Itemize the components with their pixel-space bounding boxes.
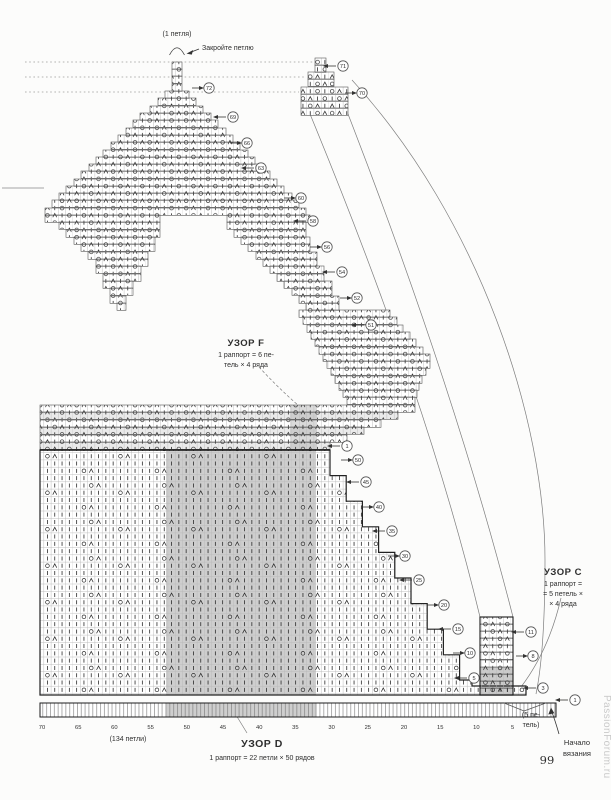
chart-row-grid: [248, 244, 310, 251]
chart-row-grid: [40, 405, 415, 412]
arrow-left-icon: [213, 115, 218, 119]
axis-tick-label: 50: [184, 725, 190, 731]
chart-row-grid: [284, 281, 332, 288]
chart-row-grid: [150, 106, 203, 113]
svg-text:51: 51: [368, 323, 374, 329]
svg-text:52: 52: [354, 296, 360, 302]
pattern-c-line3: × 4 ряда: [549, 601, 577, 608]
axis-tick-label: 35: [292, 725, 298, 731]
chart-row-grid: [103, 281, 133, 288]
dotted-guide-lines: [25, 62, 313, 92]
bind-off-label: Закройте петлю: [202, 44, 254, 52]
chart-row-grid: [45, 208, 306, 215]
pattern-d-pointer: [236, 715, 247, 733]
chart-row-grid: [347, 397, 415, 404]
chart-row-grid: [301, 94, 348, 101]
row-marker: 20: [427, 600, 449, 610]
chart-row-grid: [315, 339, 416, 346]
arrow-right-icon: [199, 86, 204, 90]
svg-text:3: 3: [541, 686, 544, 692]
chart-row-grid: [303, 317, 397, 324]
chart-row-grid: [335, 376, 422, 383]
chart-row-grid: [40, 420, 381, 427]
chart-row-grid: [256, 252, 317, 259]
chart-row-grid: [480, 674, 513, 681]
chart-row-grid: [172, 69, 182, 76]
svg-text:60: 60: [298, 196, 304, 202]
svg-text:1: 1: [573, 698, 576, 704]
knitting-chart-canvas: 706560555045403530252015105 726966636058…: [0, 0, 611, 800]
arrow-right-icon: [395, 554, 400, 558]
svg-text:71: 71: [340, 64, 346, 70]
chart-row-grid: [103, 274, 141, 281]
axis-tick-label: 25: [365, 725, 371, 731]
arrow-right-icon: [369, 505, 374, 509]
arrow-right-icon: [317, 245, 322, 249]
chart-row-grid: [96, 266, 141, 273]
chart-row-grid: [52, 200, 299, 207]
chart-row-grid: [480, 617, 513, 624]
svg-text:50: 50: [355, 458, 361, 464]
chart-row-grid: [480, 688, 513, 695]
arrow-left-icon: [555, 698, 560, 702]
chart-row-grid: [480, 681, 513, 688]
row-marker: 71: [323, 61, 348, 71]
chart-shapes: [40, 58, 526, 717]
axis-tick-label: 70: [39, 725, 45, 731]
chart-row-grid: [327, 361, 430, 368]
svg-text:15: 15: [455, 627, 461, 633]
svg-text:20: 20: [441, 603, 447, 609]
top-stitch-label: (1 петля): [163, 31, 192, 38]
row-marker: 70: [345, 88, 367, 98]
cast-on-ruler: 706560555045403530252015105: [39, 703, 556, 731]
chart-row-grid: [241, 237, 310, 244]
axis-tick-label: 20: [401, 725, 407, 731]
chart-row-grid: [277, 274, 324, 281]
pattern-f-title: УЗОР F: [228, 338, 265, 349]
axis-tick-label: 15: [437, 725, 443, 731]
svg-text:45: 45: [363, 480, 369, 486]
svg-text:25: 25: [416, 578, 422, 584]
svg-text:10: 10: [467, 651, 473, 657]
cast-on-label: (134 петли): [110, 736, 147, 743]
chart-row-grid: [96, 259, 148, 266]
row-marker: 54: [322, 267, 347, 277]
chart-row-grid: [311, 332, 410, 339]
chart-row-grid: [323, 354, 430, 361]
chart-row-grid: [301, 101, 348, 108]
row-marker: 11: [511, 627, 536, 637]
chart-row-grid: [96, 157, 255, 164]
chart-row-grid: [480, 638, 513, 645]
top-loop-arc: [170, 48, 185, 55]
chart-row-grid: [40, 435, 347, 442]
chart-row-grid: [480, 624, 513, 631]
chart-row-grid: [59, 222, 160, 229]
start-label-2: вязания: [563, 749, 591, 758]
arrow-right-icon: [460, 651, 465, 655]
row-marker: 40: [362, 502, 384, 512]
chart-row-grid: [40, 412, 398, 419]
chart-row-grid: [301, 108, 348, 115]
chart-row-grid: [315, 58, 326, 65]
svg-text:30: 30: [402, 554, 408, 560]
chart-row-grid: [172, 76, 182, 83]
arrow-right-icon: [347, 296, 352, 300]
row-marker: 50: [341, 455, 363, 465]
svg-text:5: 5: [472, 676, 475, 682]
chart-row-grid: [45, 215, 160, 222]
svg-text:66: 66: [244, 141, 250, 147]
axis-tick-label: 45: [220, 725, 226, 731]
chart-row-grid: [118, 135, 233, 142]
chart-row-grid: [40, 442, 330, 449]
svg-text:35: 35: [389, 529, 395, 535]
chart-row-grid: [110, 288, 133, 295]
chart-row-grid: [81, 171, 270, 178]
chart-row-grid: [133, 120, 218, 127]
axis-tick-label: 5: [511, 725, 514, 731]
watermark: PassionForum.ru: [601, 695, 611, 779]
pattern-f-line1: 1 раппорт = 6 пе-: [218, 352, 275, 359]
arrow-right-icon: [523, 654, 528, 658]
chart-row-grid: [66, 186, 284, 193]
pattern-c-pointer: [521, 598, 561, 687]
svg-text:8: 8: [531, 654, 534, 660]
row-marker: 56: [310, 242, 332, 252]
chart-row-grid: [292, 288, 332, 295]
chart-row-grid: [117, 303, 126, 310]
chart-row-grid: [103, 150, 248, 157]
chart-row-grid: [308, 72, 334, 79]
chart-row-grid: [172, 62, 182, 69]
start-label-1: Начало: [564, 738, 590, 747]
axis-tick-label: 65: [75, 725, 81, 731]
svg-text:69: 69: [230, 115, 236, 121]
axis-tick-label: 55: [147, 725, 153, 731]
svg-text:40: 40: [376, 505, 382, 511]
chart-row-grid: [81, 244, 155, 251]
svg-text:58: 58: [310, 219, 316, 225]
chart-row-grid: [270, 266, 324, 273]
pattern-d-line1: 1 раппорт = 22 петли × 50 рядов: [209, 755, 315, 762]
svg-text:56: 56: [324, 245, 330, 251]
chart-row-grid: [74, 237, 155, 244]
axis-tick-label: 30: [328, 725, 334, 731]
page-number: 99: [540, 753, 555, 767]
arrow-right-icon: [352, 91, 357, 95]
chart-row-grid: [263, 259, 317, 266]
svg-text:11: 11: [528, 630, 534, 636]
svg-text:54: 54: [339, 270, 345, 276]
axis-tick-label: 10: [473, 725, 479, 731]
ruler-ticks: [40, 703, 556, 717]
pattern-c-line1: 1 раппорт =: [544, 581, 582, 588]
chart-row-grid: [172, 84, 182, 91]
chart-row-grid: [88, 252, 148, 259]
chart-row-grid: [111, 142, 240, 149]
chart-row-grid: [319, 347, 423, 354]
pattern-d-title: УЗОР D: [241, 738, 283, 750]
arrow-right-icon: [434, 603, 439, 607]
chart-row-grid: [66, 230, 160, 237]
bind-off-arrow: [187, 49, 200, 55]
chart-row-grid: [308, 79, 334, 86]
chart-row-grid: [74, 179, 277, 186]
pattern-f-line2: тель × 4 ряда: [224, 362, 268, 369]
svg-text:1: 1: [345, 444, 348, 450]
chart-row-grid: [480, 631, 513, 638]
knitting-pattern-page: 706560555045403530252015105 726966636058…: [0, 0, 611, 800]
svg-text:63: 63: [258, 166, 264, 172]
row-marker: 52: [340, 293, 362, 303]
chart-row-grid: [480, 660, 513, 667]
svg-text:72: 72: [206, 86, 212, 92]
chart-row-grid: [234, 230, 306, 237]
chart-row-grid: [126, 128, 226, 135]
five-sts-label-2: тель): [523, 722, 540, 729]
chart-row-grid: [343, 390, 417, 397]
chart-row-grid: [227, 222, 306, 229]
chart-row-grid: [110, 296, 126, 303]
row-marker: 72: [192, 83, 214, 93]
chart-row-grid: [331, 368, 426, 375]
pattern-c-line2: = 5 петель ×: [543, 591, 583, 598]
chart-row-grid: [480, 667, 513, 674]
chart-row-grid: [299, 310, 390, 317]
chart-row-grid: [59, 193, 292, 200]
arrow-right-icon: [291, 196, 296, 200]
chart-row-grid: [165, 91, 189, 98]
chart-row-grid: [306, 303, 339, 310]
row-marker: 3: [523, 683, 548, 693]
chart-row-grid: [299, 296, 339, 303]
arrow-right-icon: [348, 458, 353, 462]
five-sts-label-1: (5 пе-: [522, 712, 541, 719]
pattern-c-title: УЗОР C: [544, 567, 582, 578]
chart-row-grid: [301, 87, 348, 94]
row-marker: 8: [516, 651, 538, 661]
chart-row-grid: [339, 383, 419, 390]
chart-row-grid: [480, 652, 513, 659]
svg-text:70: 70: [359, 91, 365, 97]
chart-row-grid: [140, 113, 211, 120]
pattern-d-grid: [40, 450, 526, 695]
row-marker: 45: [346, 477, 371, 487]
chart-row-grid: [158, 98, 196, 105]
chart-row-grid: [40, 427, 364, 434]
axis-tick-label: 40: [256, 725, 262, 731]
row-marker: 1: [555, 695, 580, 705]
axis-tick-label: 60: [111, 725, 117, 731]
chart-row-grid: [89, 164, 262, 171]
chart-row-grid: [480, 645, 513, 652]
